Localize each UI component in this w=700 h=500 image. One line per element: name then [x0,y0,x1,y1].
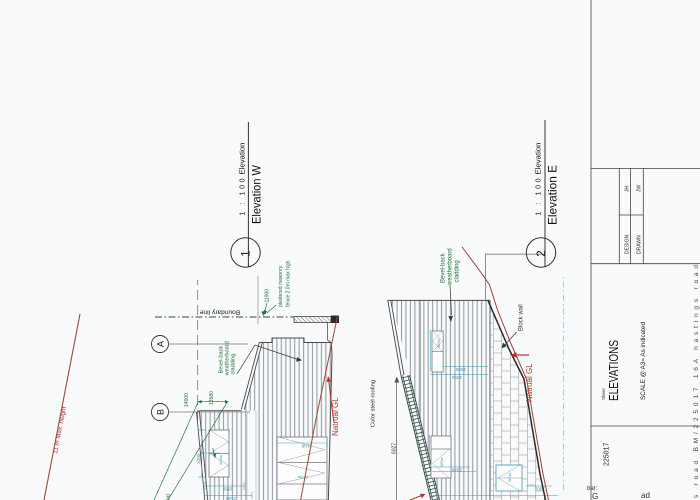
svg-text:plastered masonry: plastered masonry [278,265,284,307]
svg-text:cladding: cladding [455,260,461,282]
svg-text:2040: 2040 [451,468,462,473]
svg-text:B: B [155,409,165,415]
svg-text:ad: ad [641,491,650,500]
svg-text:Elevation: Elevation [240,142,247,174]
svg-text:W04a: W04a [219,455,223,464]
svg-text:Elevation W: Elevation W [250,164,264,224]
svg-text:11900: 11900 [265,289,271,303]
svg-text:2160: 2160 [225,496,236,500]
svg-text:DRAWN: DRAWN [637,235,643,254]
svg-text:Natrual GL: Natrual GL [525,363,534,402]
svg-text:Block wall: Block wall [519,304,525,331]
svg-text:ng: ng [166,494,172,500]
svg-text:ELEVATIONS: ELEVATIONS [606,340,621,401]
svg-text:225017: 225017 [604,443,611,466]
svg-text:G: G [592,492,598,500]
svg-text:DESIGN: DESIGN [625,234,631,254]
svg-text:JH: JH [625,186,631,193]
svg-text:JW: JW [637,185,643,193]
svg-text:6027: 6027 [392,443,398,454]
svg-text:W02a: W02a [440,458,444,467]
svg-text:Boundary line: Boundary line [200,309,241,316]
svg-text:2: 2 [536,250,548,256]
svg-text:Bevel-back: Bevel-back [441,252,447,283]
svg-text:Elevation E: Elevation E [546,165,560,225]
svg-text:fence 2.0m max high: fence 2.0m max high [286,260,292,307]
svg-text:cladding: cladding [231,354,237,375]
svg-text:A: A [155,341,165,347]
svg-text:1: 1 [241,250,253,256]
svg-text:13580: 13580 [209,391,215,405]
svg-text:1000: 1000 [196,453,201,464]
svg-text:Color steel roofing: Color steel roofing [371,380,377,427]
svg-text:1800: 1800 [455,367,466,372]
svg-text:SCALE @ A3= As indicated: SCALE @ A3= As indicated [640,322,647,400]
svg-text:W01a: W01a [508,473,512,482]
svg-text:14600: 14600 [184,393,190,407]
svg-text:weatherboard: weatherboard [448,248,454,286]
svg-text:Natrual GL: Natrual GL [331,397,340,436]
svg-text:2052: 2052 [451,375,462,380]
svg-text:Elevation: Elevation [536,142,543,174]
svg-text:W04a: W04a [437,339,441,348]
svg-text:W05a: W05a [297,475,308,480]
svg-text:1850: 1850 [222,487,233,492]
